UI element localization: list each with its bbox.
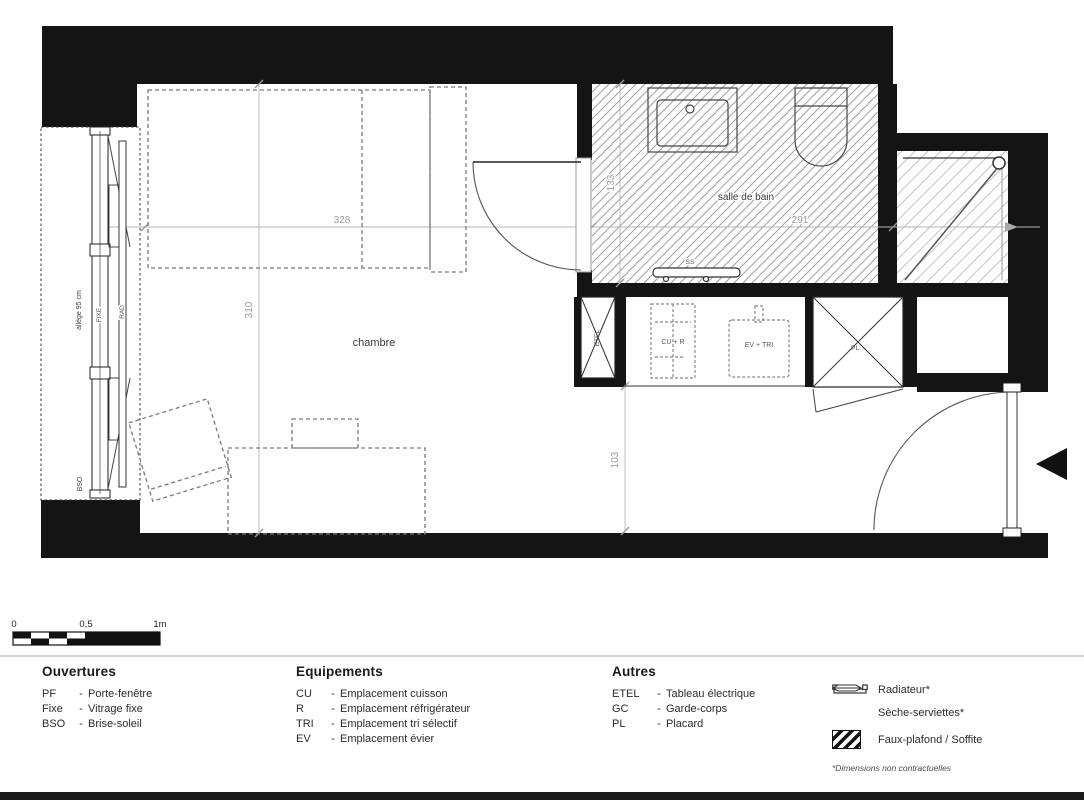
walls (41, 26, 1048, 558)
legend-item-gc: GC - Garde-corps (612, 702, 832, 717)
legend-symbol-faux-plafond: Faux-plafond / Soffite (832, 730, 1082, 749)
legend-autres-title: Autres (612, 664, 832, 679)
sheet-bottom-band (0, 792, 1084, 800)
label-allege: allège 95 cm (76, 290, 83, 330)
floor-plan-sheet: chambre salle de bain 328 291 310 133 10… (0, 0, 1084, 800)
room-label-chambre: chambre (353, 337, 396, 349)
dim-sdb-width: 291 (792, 215, 809, 226)
dim-sdb-depth: 133 (606, 174, 617, 191)
scale-tick-1m: 1m (153, 619, 166, 630)
label-pl: PL. (851, 345, 861, 352)
faux-plafond-zones (592, 84, 1008, 283)
legend-item-bso: BSO - Brise-soleil (42, 717, 282, 732)
legend-ouvertures-title: Ouvertures (42, 664, 282, 679)
legend-item-cu: CU - Emplacement cuisson (296, 687, 596, 702)
bed-placement (148, 87, 466, 272)
placard-closet (813, 297, 903, 412)
label-ev-tri: EV + TRI (745, 342, 774, 349)
placard-door-swing (816, 389, 903, 412)
dim-chambre-depth: 310 (244, 301, 255, 318)
legend-item-ev: EV - Emplacement évier (296, 732, 596, 747)
faux-plafond-icon (832, 730, 878, 749)
legend-equipements-title: Equipements (296, 664, 596, 679)
legend-autres: Autres ETEL - Tableau électrique GC - Ga… (612, 664, 832, 732)
legend-symbol-seche-serviettes: Sèche-serviettes* (832, 707, 1082, 719)
dim-entree-depth: 103 (610, 451, 621, 468)
dim-chambre-width: 328 (334, 215, 351, 226)
legend-item-pf: PF - Porte-fenêtre (42, 687, 282, 702)
legend-symbols: Radiateur* Sèche-serviettes* Faux-plafon… (832, 684, 1082, 773)
legend-footnote: *Dimensions non contractuelles (832, 763, 1082, 773)
scale-tick-0: 0 (11, 619, 16, 630)
scale-bar: 0 0,5 1m (11, 619, 166, 645)
legend-equipements: Equipements CU - Emplacement cuisson R -… (296, 664, 596, 747)
scale-tick-05: 0,5 (79, 619, 92, 630)
room-label-salle-de-bain: salle de bain (718, 192, 774, 203)
legend-item-r: R - Emplacement réfrigérateur (296, 702, 596, 717)
entrance-arrow-icon (1036, 448, 1067, 480)
label-rad: RAD (119, 305, 126, 319)
label-etel: ETEL (594, 329, 601, 346)
kitchen-equipment (625, 304, 805, 386)
legend-item-pl: PL - Placard (612, 717, 832, 732)
legend-item-etel: ETEL - Tableau électrique (612, 687, 832, 702)
legend-item-tri: TRI - Emplacement tri sélectif (296, 717, 596, 732)
desk-placement (129, 399, 425, 534)
label-bso: BSO (77, 476, 84, 491)
legend-item-fixe: Fixe - Vitrage fixe (42, 702, 282, 717)
chair-placement (129, 399, 231, 501)
entrance-door (874, 383, 1067, 537)
legend-ouvertures: Ouvertures PF - Porte-fenêtre Fixe - Vit… (42, 664, 282, 732)
legend-symbol-radiateur: Radiateur* (832, 684, 1082, 696)
label-fixe: FIXE (96, 307, 103, 322)
label-cu-r: CU + R (661, 339, 684, 346)
legend: Ouvertures PF - Porte-fenêtre Fixe - Vit… (0, 664, 1084, 792)
chambre-door (473, 158, 591, 272)
label-ss: SS (686, 259, 695, 266)
